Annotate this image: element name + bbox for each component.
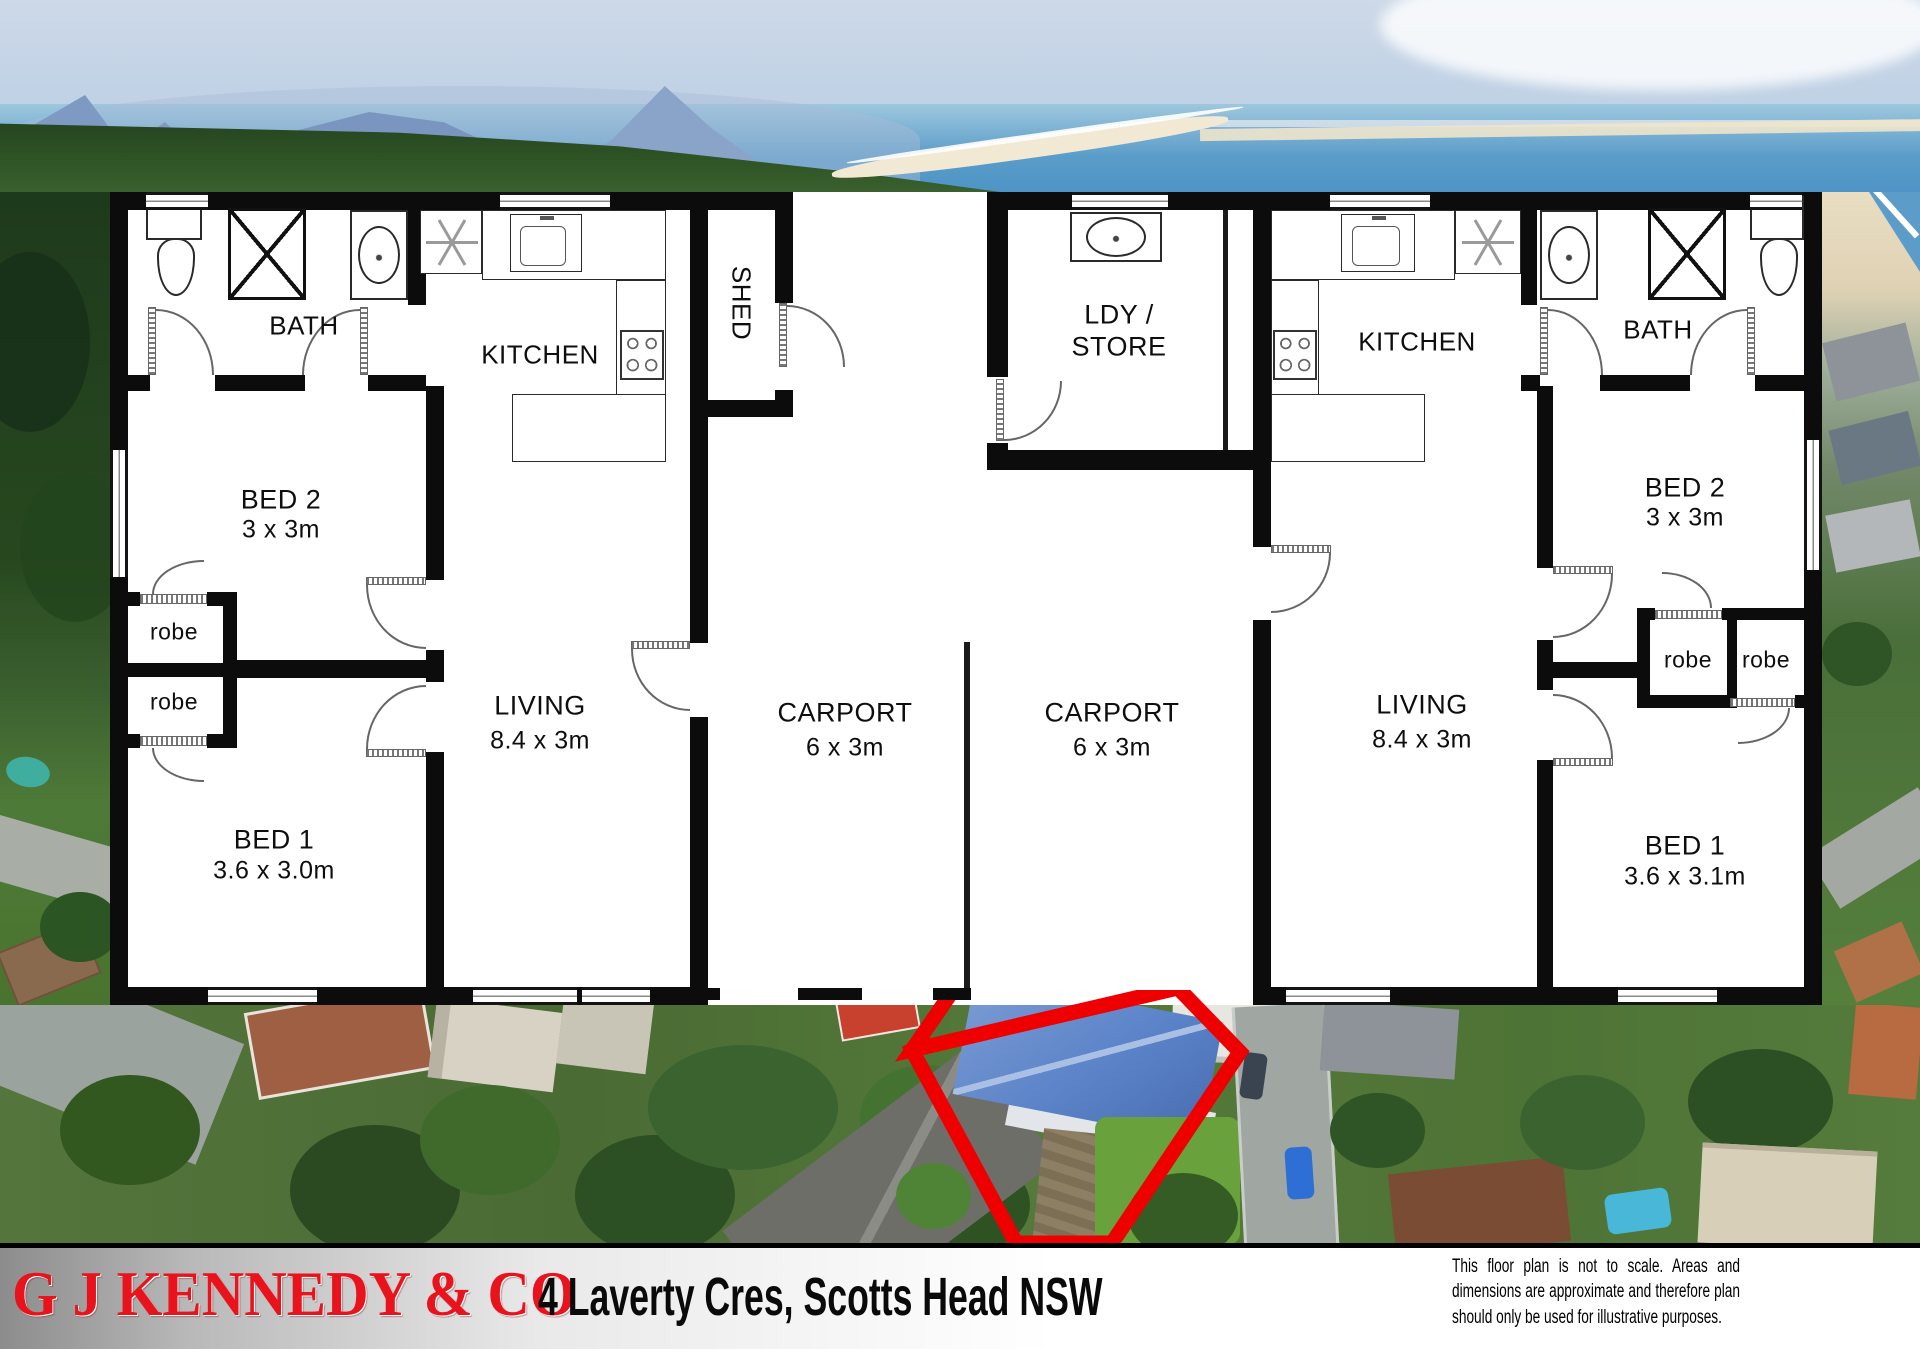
stove-icon: [620, 330, 664, 380]
room-label-carport-right: CARPORT: [1044, 698, 1179, 729]
wall: [1722, 608, 1804, 620]
wall: [128, 592, 140, 606]
door-leaf: [996, 379, 1004, 441]
disclaimer-text: This floor plan is not to scale. Areas a…: [1452, 1254, 1740, 1330]
room-dim-bed1-right: 3.6 x 3.1m: [1624, 863, 1746, 892]
wall: [237, 660, 426, 678]
shower-icon: [228, 208, 306, 300]
window: [146, 192, 208, 210]
wall: [1537, 640, 1553, 690]
basin-icon: [1548, 226, 1590, 284]
window: [1804, 440, 1822, 570]
room-label-bed1-right: BED 1: [1645, 831, 1726, 862]
door-leaf: [1540, 307, 1548, 375]
wall: [426, 650, 444, 682]
room-label-bed2-right: BED 2: [1645, 473, 1726, 504]
wall: [1600, 375, 1690, 391]
door-leaf: [1553, 758, 1613, 766]
wall: [690, 192, 708, 643]
window: [582, 987, 650, 1005]
wall: [368, 375, 426, 391]
robe-sliding-door: [1655, 610, 1722, 619]
room-label-bath-left: BATH: [269, 311, 338, 342]
wall: [1795, 695, 1804, 708]
door-leaf: [366, 749, 426, 757]
room-label-shed: SHED: [726, 266, 757, 340]
door-leaf: [631, 641, 690, 649]
room-dim-bed2-left: 3 x 3m: [242, 516, 320, 545]
room-label-bed1-left: BED 1: [234, 825, 315, 856]
wall: [128, 663, 237, 677]
room-label-kitchen-right: KITCHEN: [1358, 327, 1476, 358]
window: [1750, 192, 1802, 210]
wall: [128, 375, 150, 391]
kitchen-sink-inner: [520, 226, 566, 266]
door-leaf: [360, 307, 368, 375]
door-leaf: [1553, 566, 1613, 574]
robe-sliding-door: [1730, 698, 1795, 707]
shower-icon: [1648, 208, 1726, 300]
wall: [1537, 760, 1553, 987]
room-label-carport-left: CARPORT: [777, 698, 912, 729]
room-label-robe-left-bottom: robe: [150, 689, 198, 716]
wall: [426, 752, 444, 987]
room-dim-carport-right: 6 x 3m: [1073, 734, 1151, 763]
door-leaf: [1271, 545, 1331, 553]
wall: [426, 386, 444, 580]
wall: [1637, 695, 1730, 708]
footer-bar: G J KENNEDY & CO 4 Laverty Cres, Scotts …: [0, 1248, 1920, 1349]
wall: [223, 592, 237, 748]
tap-icon: [1372, 216, 1386, 220]
kitchen-sink-inner: [1352, 226, 1400, 266]
window: [1330, 192, 1430, 210]
wall: [215, 375, 305, 391]
carport-post-line: [933, 988, 971, 1000]
floorplan-flyer: BATH KITCHEN SHED LDY / STORE KITCHEN BA…: [0, 0, 1920, 1349]
room-label-bed2-left: BED 2: [241, 485, 322, 516]
door-leaf: [779, 303, 787, 367]
robe-sliding-door: [140, 736, 207, 746]
carport-post-line: [798, 988, 862, 1000]
room-dim-carport-left: 6 x 3m: [806, 734, 884, 763]
wall: [1637, 608, 1655, 620]
window: [473, 987, 577, 1005]
tap-icon: [540, 216, 554, 220]
tub-basin-icon: [1086, 217, 1146, 257]
room-label-robe-left-top: robe: [150, 619, 198, 646]
room-label-kitchen-left: KITCHEN: [481, 340, 599, 371]
wall: [1253, 620, 1271, 987]
property-address: 4 Laverty Cres, Scotts Head NSW: [538, 1270, 1103, 1324]
wall: [1755, 375, 1822, 391]
door-leaf: [148, 307, 156, 375]
wall: [1537, 386, 1553, 568]
agency-logo: G J KENNEDY & CO: [12, 1262, 490, 1326]
room-label-robe-right-right: robe: [1742, 647, 1790, 674]
room-label-laundry-line2: STORE: [1071, 332, 1166, 363]
room-label-living-right: LIVING: [1376, 690, 1468, 721]
partition-line: [1223, 210, 1228, 450]
basin-icon: [358, 226, 400, 284]
laundry-asterisk-icon: [1462, 215, 1514, 267]
window: [208, 987, 317, 1005]
wall: [987, 192, 1008, 377]
room-label-living-left: LIVING: [494, 691, 586, 722]
room-dim-living-right: 8.4 x 3m: [1372, 726, 1472, 755]
window: [1286, 987, 1390, 1005]
room-dim-living-left: 8.4 x 3m: [490, 727, 590, 756]
room-label-bath-right: BATH: [1623, 315, 1692, 346]
laundry-asterisk-icon: [426, 215, 478, 267]
door-leaf: [1747, 307, 1755, 375]
window: [110, 450, 128, 577]
window: [500, 192, 610, 210]
wall: [775, 192, 793, 303]
carport-divider-line: [964, 642, 970, 988]
wall: [110, 192, 128, 1005]
wall: [128, 734, 140, 748]
room-label-robe-right-left: robe: [1664, 647, 1712, 674]
wall: [708, 400, 793, 417]
door-leaf: [366, 577, 426, 585]
robe-sliding-door: [140, 594, 207, 604]
wall: [1521, 210, 1537, 305]
room-dim-bed2-right: 3 x 3m: [1646, 504, 1724, 533]
wall: [987, 450, 1270, 470]
wall: [1253, 192, 1271, 547]
kitchen-bench: [1271, 394, 1425, 462]
wall: [1553, 662, 1650, 678]
carport-post-line: [708, 988, 720, 1000]
wall: [1637, 608, 1650, 708]
window: [1618, 987, 1717, 1005]
wall: [690, 717, 708, 987]
kitchen-bench: [512, 394, 666, 462]
window: [1072, 192, 1168, 210]
stove-icon: [1273, 330, 1317, 380]
wall: [1804, 192, 1822, 1005]
wall: [1727, 608, 1737, 708]
room-dim-bed1-left: 3.6 x 3.0m: [213, 857, 335, 886]
room-label-laundry-line1: LDY /: [1084, 300, 1154, 331]
